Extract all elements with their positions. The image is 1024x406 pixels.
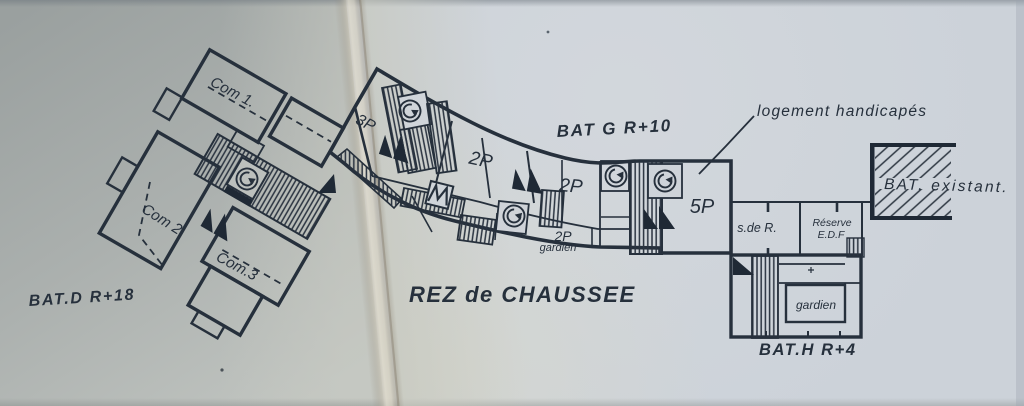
- svg-text:BAT.H R+4: BAT.H R+4: [759, 341, 857, 359]
- svg-text:BAT. existant.: BAT. existant.: [884, 176, 1009, 196]
- svg-text:E.D.F: E.D.F: [818, 229, 845, 241]
- svg-text:2P: 2P: [557, 175, 583, 198]
- svg-text:s.de R.: s.de R.: [737, 221, 777, 235]
- svg-text:REZ de CHAUSSEE: REZ de CHAUSSEE: [409, 282, 636, 307]
- svg-text:gardien: gardien: [540, 242, 577, 254]
- svg-text:Réserve: Réserve: [812, 217, 851, 229]
- svg-text:logement handicapés: logement handicapés: [757, 103, 927, 120]
- svg-text:5P: 5P: [690, 196, 715, 218]
- svg-text:gardien: gardien: [796, 298, 836, 312]
